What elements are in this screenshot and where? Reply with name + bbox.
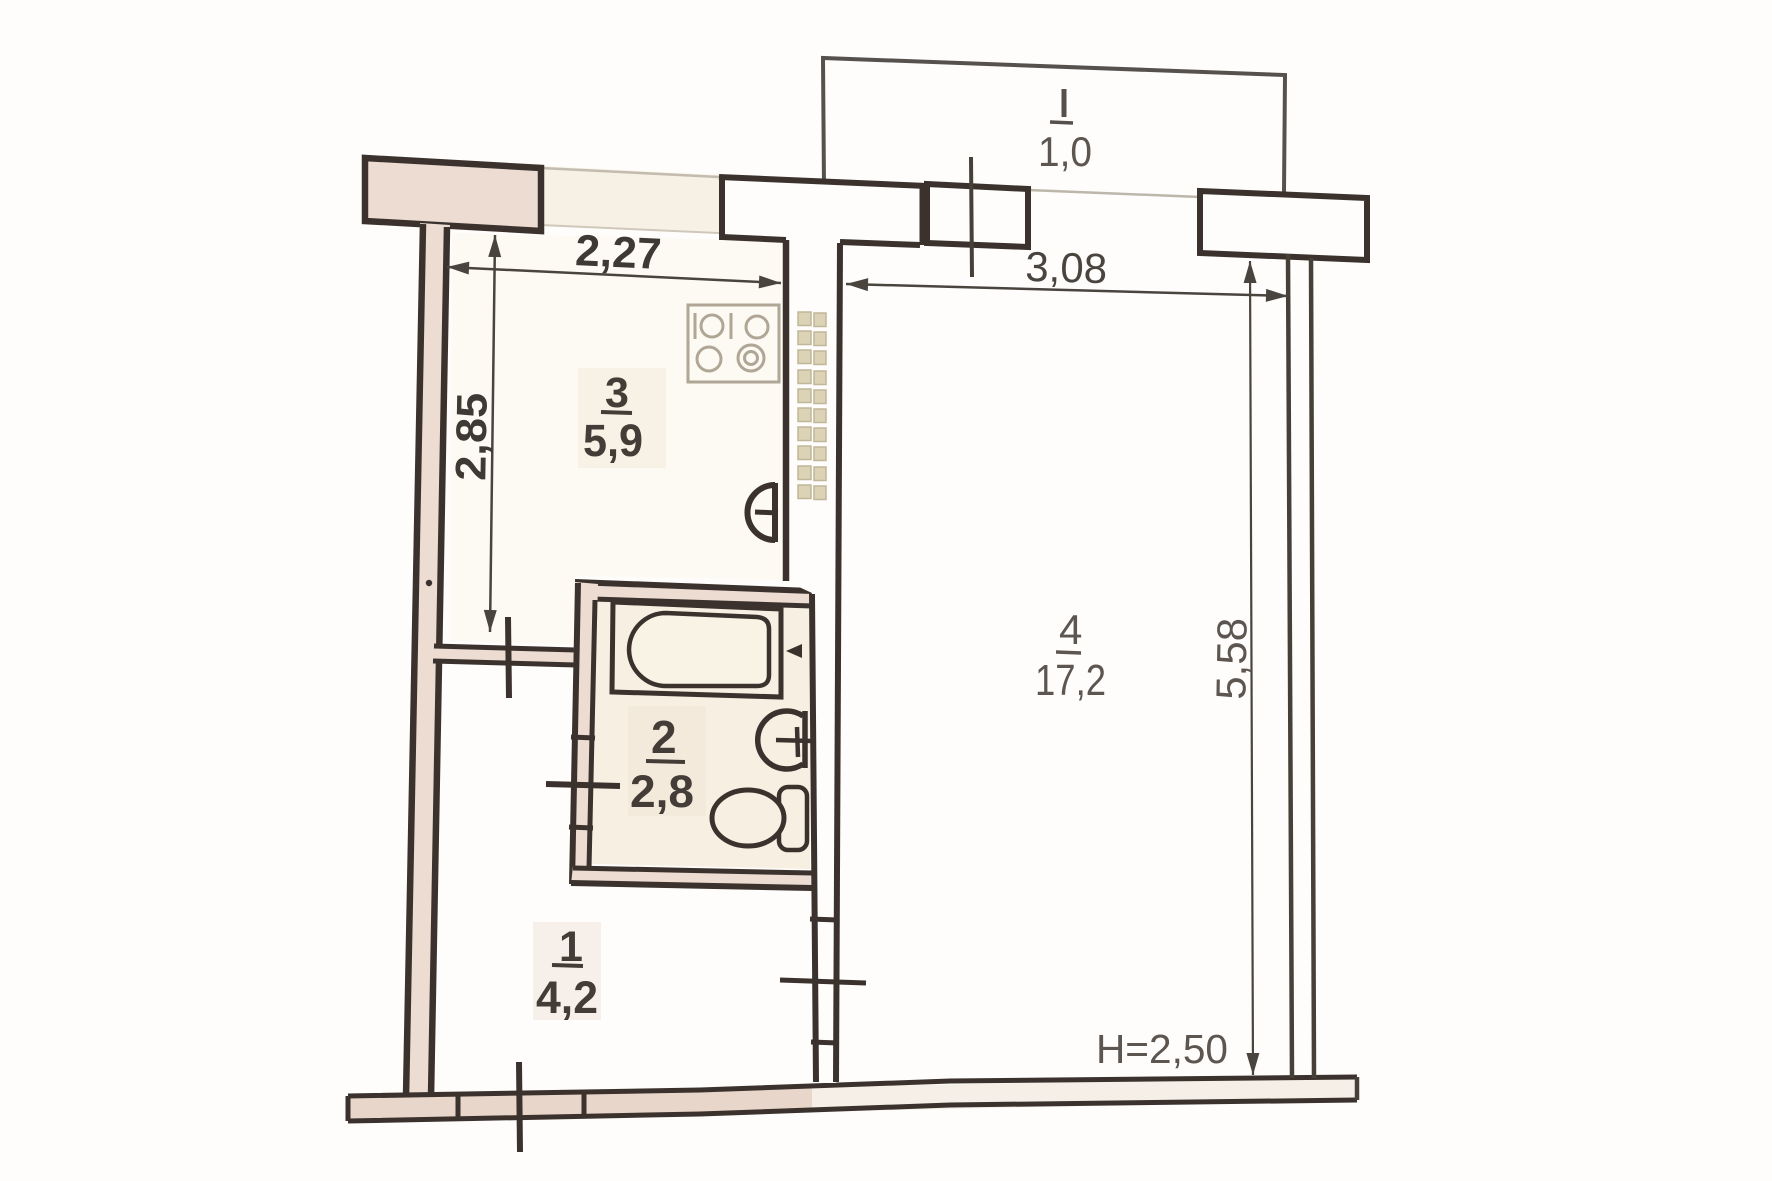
svg-text:2,8: 2,8	[630, 766, 694, 817]
svg-text:H=2,50: H=2,50	[1096, 1026, 1228, 1072]
svg-text:3: 3	[605, 369, 629, 417]
svg-text:4,2: 4,2	[536, 972, 598, 1023]
svg-text:2,27: 2,27	[574, 226, 662, 279]
svg-text:2: 2	[651, 711, 677, 763]
svg-text:5,58: 5,58	[1207, 617, 1255, 700]
svg-text:3,08: 3,08	[1025, 243, 1108, 292]
svg-text:5,9: 5,9	[583, 415, 643, 466]
svg-text:2,85: 2,85	[447, 392, 497, 481]
svg-text:1,0: 1,0	[1038, 128, 1092, 175]
svg-text:4: 4	[1059, 606, 1082, 653]
svg-text:17,2: 17,2	[1035, 656, 1106, 705]
